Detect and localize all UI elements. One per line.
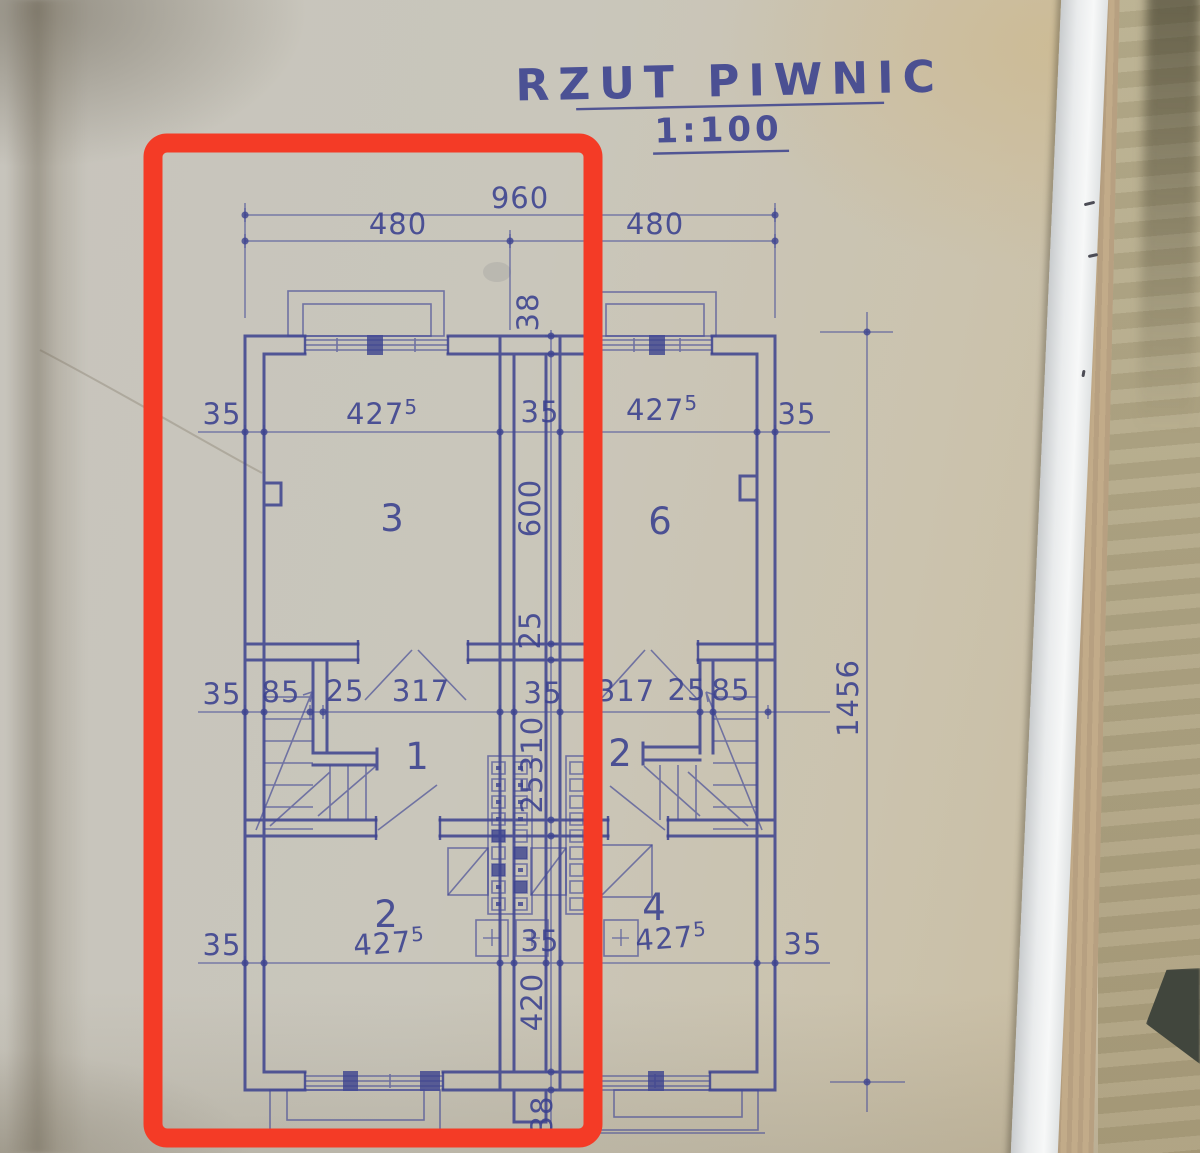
room-left-top: 3 [380,497,404,540]
blueprint-photo: 960 480 480 35 4275 35 4275 35 35 85 25 … [0,0,1200,1153]
dim-mid-d: 317 [392,674,450,708]
dim-upper-c: 35 [521,395,560,429]
dim-mid-f: 317 [597,674,655,708]
floorplan-drawing: 960 480 480 35 4275 35 4275 35 35 85 25 … [0,0,1200,1153]
dim-upper-e: 35 [778,397,817,431]
room-right-top: 6 [648,500,672,543]
dim-lower-c: 35 [521,924,560,958]
dim-upper-a: 35 [203,397,242,431]
dim-chain-600: 600 [513,479,547,537]
windows [252,291,765,1136]
dim-half-left: 480 [369,207,427,241]
dim-mid-e: 35 [524,676,563,710]
room-left-bottom: 2 [374,893,398,936]
dim-lower-a: 35 [203,928,242,962]
dim-total-width: 960 [491,181,549,215]
dim-mid-b: 85 [262,675,301,709]
dim-upper-b: 4275 [346,395,418,431]
dim-mid-a: 35 [203,677,242,711]
dim-chain-310: 310 [515,716,549,774]
room-right-bottom: 4 [642,886,666,929]
dim-mid-h: 85 [712,673,751,707]
drawing-scale: 1:100 [654,109,783,152]
dim-chain-420: 420 [515,973,549,1031]
dim-chain-38-top: 38 [511,293,545,332]
dim-mid-c: 25 [326,674,365,708]
dim-lower-e: 35 [784,927,823,961]
room-right-middle: 2 [608,732,632,775]
dim-chain-25b: 25 [515,775,549,814]
room-left-middle: 1 [405,735,429,778]
dim-upper-d: 4275 [626,391,698,427]
dim-chain-25a: 25 [513,611,547,650]
dimension-labels: 960 480 480 35 4275 35 4275 35 35 85 25 … [203,181,865,1134]
dim-mid-g: 25 [668,673,707,707]
dim-depth-1456: 1456 [831,659,865,737]
walls [245,336,775,1122]
paper-smudge [483,262,511,282]
dim-half-right: 480 [626,207,684,241]
